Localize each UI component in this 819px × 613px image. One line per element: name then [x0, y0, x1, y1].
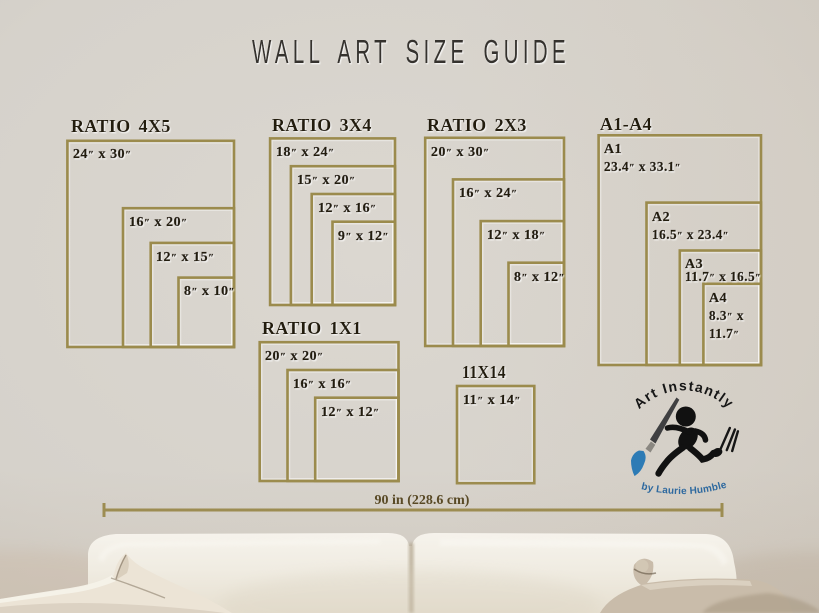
- svg-text:11″ x 14″: 11″ x 14″: [463, 393, 521, 408]
- svg-text:RATIO 2X3: RATIO 2X3: [427, 115, 527, 135]
- svg-text:12″ x 12″: 12″ x 12″: [321, 405, 380, 420]
- svg-text:20″ x 20″: 20″ x 20″: [265, 349, 324, 364]
- svg-text:A4: A4: [709, 291, 727, 306]
- svg-text:A2: A2: [652, 210, 670, 225]
- svg-text:11.7″ x 16.5″: 11.7″ x 16.5″: [685, 269, 761, 284]
- svg-text:16.5″ x 23.4″: 16.5″ x 23.4″: [652, 227, 729, 242]
- svg-text:16″ x 20″: 16″ x 20″: [129, 215, 188, 230]
- svg-text:16″ x 16″: 16″ x 16″: [293, 377, 352, 392]
- svg-text:24″ x 30″: 24″ x 30″: [73, 147, 132, 162]
- svg-text:12″ x 18″: 12″ x 18″: [487, 228, 546, 243]
- svg-text:15″ x 20″: 15″ x 20″: [297, 173, 356, 188]
- svg-text:RATIO 1X1: RATIO 1X1: [262, 318, 362, 338]
- svg-text:WALL ART SIZE GUIDE: WALL ART SIZE GUIDE: [252, 33, 570, 70]
- svg-text:12″ x 16″: 12″ x 16″: [318, 201, 377, 216]
- svg-text:8″ x 12″: 8″ x 12″: [514, 270, 565, 285]
- svg-text:16″ x 24″: 16″ x 24″: [459, 186, 518, 201]
- svg-text:9″ x 12″: 9″ x 12″: [338, 229, 389, 244]
- svg-text:20″ x 30″: 20″ x 30″: [431, 145, 490, 160]
- svg-text:23.4″ x 33.1″: 23.4″ x 33.1″: [604, 159, 681, 174]
- svg-text:A1: A1: [604, 142, 622, 157]
- svg-text:RATIO 4X5: RATIO 4X5: [71, 116, 171, 136]
- svg-text:11X14: 11X14: [462, 362, 506, 382]
- svg-text:12″ x 15″: 12″ x 15″: [156, 250, 215, 265]
- svg-text:RATIO 3X4: RATIO 3X4: [272, 115, 372, 135]
- svg-text:A1-A4: A1-A4: [600, 114, 652, 134]
- svg-text:8″ x 10″: 8″ x 10″: [184, 284, 235, 299]
- svg-text:18″ x 24″: 18″ x 24″: [276, 145, 335, 160]
- svg-text:8.3″ x: 8.3″ x: [709, 308, 744, 323]
